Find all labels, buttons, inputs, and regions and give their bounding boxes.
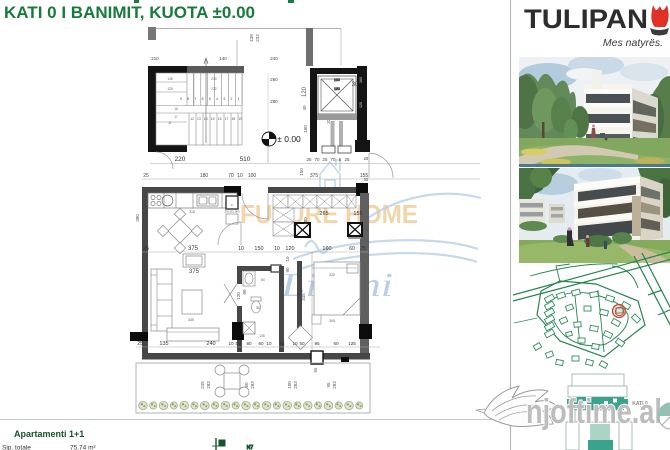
svg-text:10: 10: [274, 246, 280, 252]
svg-text:438: 438: [249, 34, 254, 42]
svg-text:345: 345: [188, 318, 194, 322]
svg-text:220: 220: [175, 156, 186, 163]
svg-text:283: 283: [206, 381, 211, 389]
svg-text:75.74 m²: 75.74 m²: [70, 445, 96, 450]
svg-text:230: 230: [211, 77, 217, 81]
svg-text:4: 4: [216, 97, 218, 101]
svg-text:25: 25: [360, 246, 366, 252]
svg-text:128: 128: [167, 87, 173, 91]
svg-text:16: 16: [218, 117, 222, 121]
svg-text:283: 283: [293, 381, 298, 389]
svg-text:95: 95: [279, 341, 285, 346]
svg-text:100: 100: [287, 381, 292, 389]
svg-text:25: 25: [344, 157, 350, 162]
svg-text:125: 125: [348, 341, 356, 346]
svg-text:9: 9: [180, 97, 182, 101]
svg-text:375: 375: [188, 246, 199, 252]
svg-text:8: 8: [187, 97, 189, 101]
svg-text:375: 375: [310, 173, 319, 179]
svg-text:5: 5: [209, 97, 211, 101]
svg-text:60: 60: [244, 382, 249, 388]
svg-text:60: 60: [349, 246, 355, 252]
svg-text:283: 283: [250, 381, 255, 389]
svg-text:10: 10: [266, 341, 272, 346]
svg-text:70: 70: [228, 173, 234, 179]
svg-text:280: 280: [270, 99, 278, 104]
svg-text:240: 240: [270, 56, 278, 61]
svg-text:240: 240: [206, 341, 215, 347]
svg-text:160: 160: [359, 77, 363, 83]
svg-text:180: 180: [200, 173, 209, 179]
svg-text:1: 1: [238, 97, 240, 101]
svg-text:120: 120: [359, 102, 363, 108]
svg-text:25: 25: [322, 157, 328, 162]
svg-text:160: 160: [303, 125, 308, 133]
svg-text:50: 50: [235, 341, 241, 346]
svg-text:ZK1(S1.9H): ZK1(S1.9H): [225, 210, 240, 214]
svg-text:140: 140: [219, 56, 227, 61]
svg-text:155: 155: [360, 173, 369, 179]
svg-text:80: 80: [261, 278, 265, 282]
svg-text:305: 305: [329, 319, 335, 323]
svg-text:N7: N7: [247, 445, 254, 450]
svg-text:10: 10: [228, 341, 234, 346]
svg-text:TULIPAN: TULIPAN: [524, 4, 648, 34]
svg-text:55: 55: [313, 367, 318, 373]
svg-text:18: 18: [232, 117, 236, 121]
svg-text:3: 3: [223, 97, 225, 101]
svg-text:95: 95: [314, 341, 320, 346]
svg-text:210: 210: [151, 56, 159, 61]
svg-text:155: 155: [353, 211, 362, 217]
svg-text:15: 15: [211, 117, 215, 121]
svg-text:120: 120: [302, 86, 308, 97]
svg-text:318: 318: [189, 210, 195, 214]
svg-text:160: 160: [334, 78, 340, 82]
svg-text:135: 135: [259, 334, 265, 338]
svg-text:17: 17: [225, 117, 229, 121]
svg-text:13: 13: [197, 117, 201, 121]
svg-text:19: 19: [238, 117, 242, 121]
svg-text:40: 40: [302, 105, 307, 111]
svg-text:Apartamenti 1+1: Apartamenti 1+1: [14, 429, 84, 439]
svg-text:120: 120: [236, 292, 241, 300]
svg-text:510: 510: [240, 156, 251, 163]
svg-text:160: 160: [334, 87, 340, 91]
svg-text:80: 80: [242, 289, 247, 295]
svg-text:320: 320: [329, 273, 335, 277]
svg-text:60: 60: [333, 341, 339, 346]
svg-text:180: 180: [303, 217, 308, 225]
svg-text:95: 95: [326, 382, 331, 388]
svg-text:Mes natyrës.: Mes natyrës.: [603, 37, 663, 49]
svg-text:380: 380: [135, 214, 140, 222]
svg-text:135: 135: [159, 341, 168, 347]
svg-text:25: 25: [306, 157, 312, 162]
svg-text:150: 150: [254, 246, 263, 252]
svg-text:265: 265: [319, 211, 328, 217]
svg-text:245: 245: [200, 381, 205, 389]
svg-text:25: 25: [137, 341, 143, 347]
svg-text:7: 7: [194, 97, 196, 101]
svg-text:30: 30: [352, 82, 359, 88]
svg-text:260: 260: [270, 77, 278, 82]
svg-text:njoftime.al: njoftime.al: [526, 393, 662, 431]
svg-text:17: 17: [174, 115, 178, 119]
svg-text:232: 232: [211, 87, 217, 91]
svg-text:283: 283: [332, 381, 337, 389]
svg-text:10: 10: [237, 173, 243, 179]
svg-text:25: 25: [143, 246, 149, 252]
svg-text:14: 14: [204, 117, 208, 121]
svg-text:138: 138: [167, 77, 173, 81]
svg-text:Sip. totale: Sip. totale: [2, 445, 31, 450]
svg-text:233: 233: [255, 34, 260, 42]
svg-text:10: 10: [238, 246, 244, 252]
svg-text:90: 90: [285, 267, 290, 273]
svg-text:6: 6: [202, 97, 204, 101]
svg-text:120: 120: [285, 246, 294, 252]
svg-text:12: 12: [190, 117, 194, 121]
svg-text:60: 60: [258, 341, 264, 346]
svg-text:25: 25: [143, 173, 149, 179]
svg-text:375: 375: [189, 269, 200, 275]
svg-text:18: 18: [174, 107, 178, 111]
svg-text:10: 10: [285, 256, 290, 262]
svg-text:25: 25: [364, 156, 369, 161]
svg-text:60: 60: [246, 341, 252, 346]
svg-text:50: 50: [299, 341, 305, 346]
svg-text:70: 70: [330, 157, 336, 162]
svg-text:11: 11: [168, 121, 172, 125]
svg-text:160: 160: [322, 246, 331, 252]
svg-text:2: 2: [230, 97, 232, 101]
svg-text:70: 70: [314, 157, 320, 162]
svg-text:100: 100: [248, 173, 257, 179]
svg-text:10: 10: [292, 341, 298, 346]
svg-text:± 0.00: ± 0.00: [277, 134, 301, 144]
svg-text:KATI 0 I BANIMIT, KUOTA ±0.00: KATI 0 I BANIMIT, KUOTA ±0.00: [4, 4, 255, 22]
svg-text:88: 88: [256, 306, 260, 310]
svg-text:150: 150: [299, 168, 304, 176]
